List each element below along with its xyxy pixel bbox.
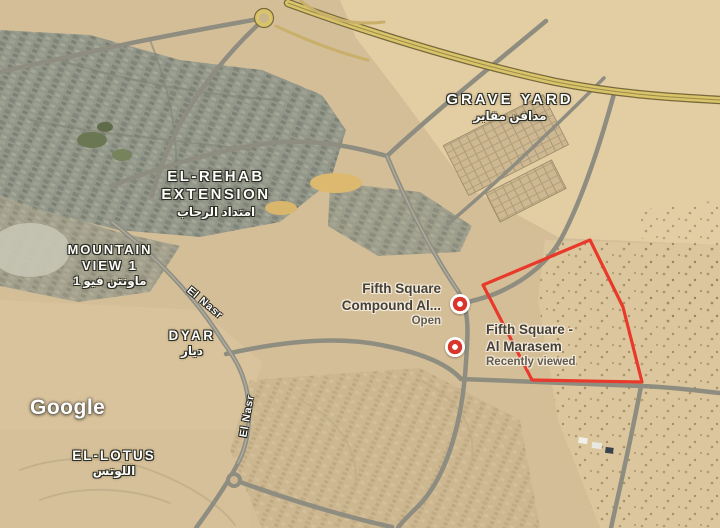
place-label-fifth-square-al-marasem[interactable]: Fifth Square - Al Marasem Recently viewe… [486,321,575,369]
compound-name-line2: Compound Al... [342,298,441,313]
roundabout-south [228,474,240,486]
compound-status: Open [342,314,441,328]
grave-yard-ar: مدافن مقابر [446,109,573,124]
area-label-el-rehab-extension: EL-REHAB EXTENSION امتداد الرحاب [161,168,270,219]
rehab-line2: EXTENSION [161,186,270,203]
roundabout-north [257,11,271,25]
mountain-view-ar: ماونتن فيو 1 [67,274,152,289]
marasem-name-line2: Al Marasem [486,339,562,354]
mountain-view-line2: VIEW 1 [82,258,138,273]
rehab-line1: EL-REHAB [167,168,265,185]
place-label-fifth-square-compound[interactable]: Fifth Square Compound Al... Open [342,280,441,328]
map-pin-fifth-square-al-marasem[interactable] [445,337,465,357]
satellite-map-view[interactable]: GRAVE YARD مدافن مقابر EL-REHAB EXTENSIO… [0,0,720,528]
area-label-dyar: DYAR ديار [168,328,215,359]
area-label-mountain-view-1: MOUNTAIN VIEW 1 ماونتن فيو 1 [67,242,152,288]
marasem-name-line1: Fifth Square - [486,322,573,337]
dyar-ar: ديار [168,344,215,359]
mountain-view-line1: MOUNTAIN [67,242,152,257]
grave-yard-en: GRAVE YARD [446,91,573,108]
el-lotus-en: EL-LOTUS [72,448,156,463]
dyar-en: DYAR [168,328,215,343]
compound-name-line1: Fifth Square [362,281,441,296]
area-label-el-lotus: EL-LOTUS اللوتس [72,448,156,479]
el-lotus-ar: اللوتس [72,464,156,479]
rehab-ar: امتداد الرحاب [161,205,270,220]
google-logo[interactable]: Google [30,396,105,420]
area-label-grave-yard: GRAVE YARD مدافن مقابر [446,91,573,124]
marasem-status: Recently viewed [486,355,575,369]
map-pin-fifth-square-compound[interactable] [450,294,470,314]
